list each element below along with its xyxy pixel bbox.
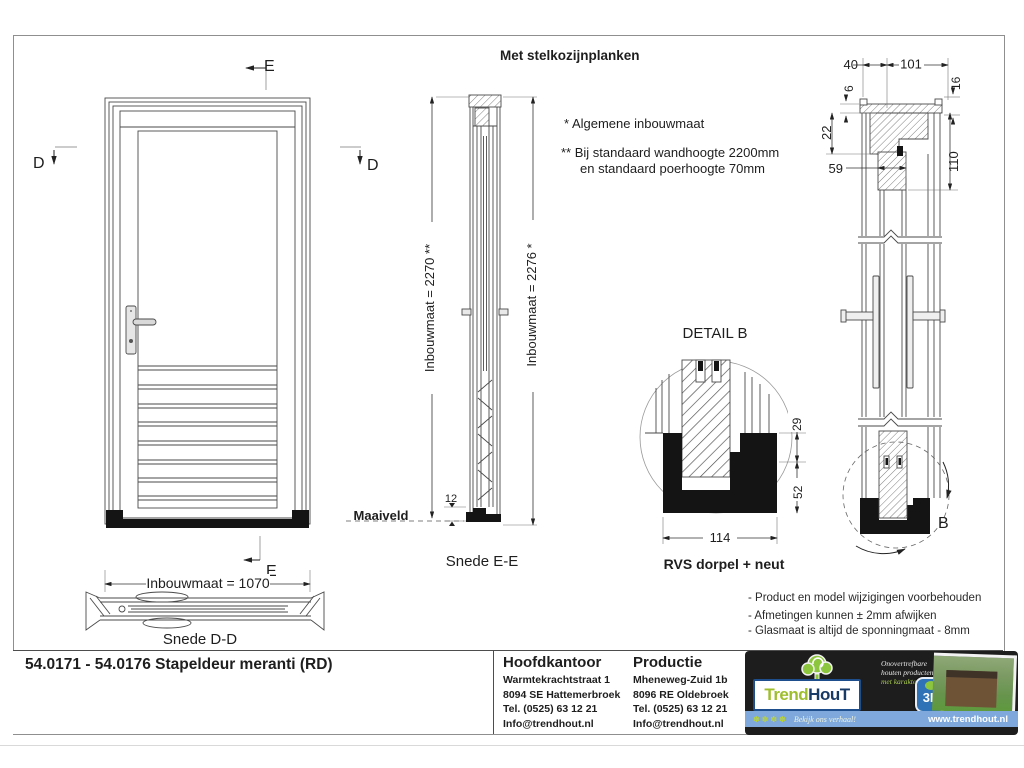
- tagline-line-2: houten producten: [881, 668, 933, 677]
- gazebo-photo: [932, 653, 1017, 714]
- tagline-line-1: Onovertrefbare: [881, 659, 933, 668]
- header-note: Met stelkozijnplanken: [500, 48, 640, 63]
- marker-d-left: D: [33, 155, 45, 172]
- dim-22: 22: [819, 126, 834, 140]
- production-line-3: Tel. (0525) 63 12 21: [633, 702, 729, 717]
- star-icons: ✽✽✽✽: [753, 715, 788, 724]
- production-line-1: Mheneweg-Zuid 1b: [633, 673, 729, 688]
- front-width-label: Inbouwmaat = 1070: [146, 575, 270, 591]
- gazebo-shape: [945, 670, 997, 707]
- page-edge-line: [0, 745, 1024, 746]
- ee-right-dim: Inbouwmaat = 2276 *: [524, 243, 539, 366]
- trendhout-logo-block: TrendHouT Onovertrefbare houten producte…: [745, 651, 1018, 735]
- ee-shoe-dim: 12: [445, 493, 457, 505]
- drawing-title: 54.0171 - 54.0176 Stapeldeur meranti (RD…: [25, 656, 333, 674]
- dim-6: 6: [842, 85, 856, 92]
- note-line-1: - Product en model wijzigingen voorbehou…: [748, 592, 981, 604]
- marker-e-top: E: [264, 58, 275, 75]
- ee-left-dim: Inbouwmaat = 2270 **: [422, 244, 437, 372]
- tree-icon: [800, 653, 834, 681]
- drawing-sheet: E D D E Inbouwmaat = 1070: [0, 0, 1024, 768]
- dim-52: 52: [791, 485, 805, 499]
- ee-dimensions: Inbouwmaat = 2270 ** Inbouwmaat = 2276 *…: [354, 97, 539, 526]
- front-width-dimension: Inbouwmaat = 1070: [105, 570, 310, 592]
- website-url: www.trendhout.nl: [928, 714, 1008, 725]
- trendhout-wordmark: TrendHouT: [753, 679, 861, 711]
- note-line-2: - Afmetingen kunnen ± 2mm afwijken: [748, 610, 937, 622]
- footnote-2b: en standaard poerhoogte 70mm: [580, 161, 765, 176]
- office-heading: Hoofdkantoor: [503, 654, 620, 671]
- production-address: Productie Mheneweg-Zuid 1b 8096 RE Oldeb…: [633, 654, 729, 731]
- dim-114: 114: [710, 530, 731, 545]
- detail-b: [640, 360, 792, 513]
- dim-101: 101: [900, 57, 922, 72]
- caption-snede-ee: Snede E-E: [446, 553, 519, 570]
- office-line-2: 8094 SE Hattemerbroek: [503, 688, 620, 703]
- production-heading: Productie: [633, 654, 729, 671]
- caption-snede-dd: Snede D-D: [163, 631, 237, 648]
- caption-rvs: RVS dorpel + neut: [664, 556, 785, 572]
- brand-hout: HouT: [808, 685, 849, 705]
- footnote-1: * Algemene inbouwmaat: [564, 116, 704, 131]
- vertical-section-body: [841, 230, 945, 534]
- vertical-section-top: [860, 99, 942, 236]
- section-dd: [86, 592, 324, 630]
- maaiveld-label: Maaiveld: [354, 508, 409, 523]
- logo-bottom-strip: ✽✽✽✽ Bekijk ons verhaal! www.trendhout.n…: [745, 711, 1018, 727]
- caption-detail-b: DETAIL B: [682, 325, 747, 342]
- marker-b: B: [938, 515, 949, 532]
- marker-d-right: D: [367, 157, 379, 174]
- office-line-3: Tel. (0525) 63 12 21: [503, 702, 620, 717]
- footnote-2a: ** Bij standaard wandhoogte 2200mm: [561, 145, 779, 160]
- office-address: Hoofdkantoor Warmtekrachtstraat 1 8094 S…: [503, 654, 620, 731]
- production-line-2: 8096 RE Oldebroek: [633, 688, 729, 703]
- dim-59: 59: [829, 161, 843, 176]
- office-line-1: Warmtekrachtstraat 1: [503, 673, 620, 688]
- office-line-4: Info@trendhout.nl: [503, 717, 620, 732]
- dim-110: 110: [946, 151, 961, 172]
- brand-trend: Trend: [764, 685, 808, 705]
- production-line-4: Info@trendhout.nl: [633, 717, 729, 732]
- front-view: [105, 98, 310, 528]
- dim-29: 29: [790, 417, 804, 431]
- title-block-divider: [493, 651, 494, 734]
- strip-script-text: Bekijk ons verhaal!: [794, 715, 856, 724]
- dim-16: 16: [949, 76, 963, 90]
- section-ee: [462, 95, 508, 522]
- note-line-3: - Glasmaat is altijd de sponningmaat - 8…: [748, 625, 970, 637]
- dim-40: 40: [844, 57, 858, 72]
